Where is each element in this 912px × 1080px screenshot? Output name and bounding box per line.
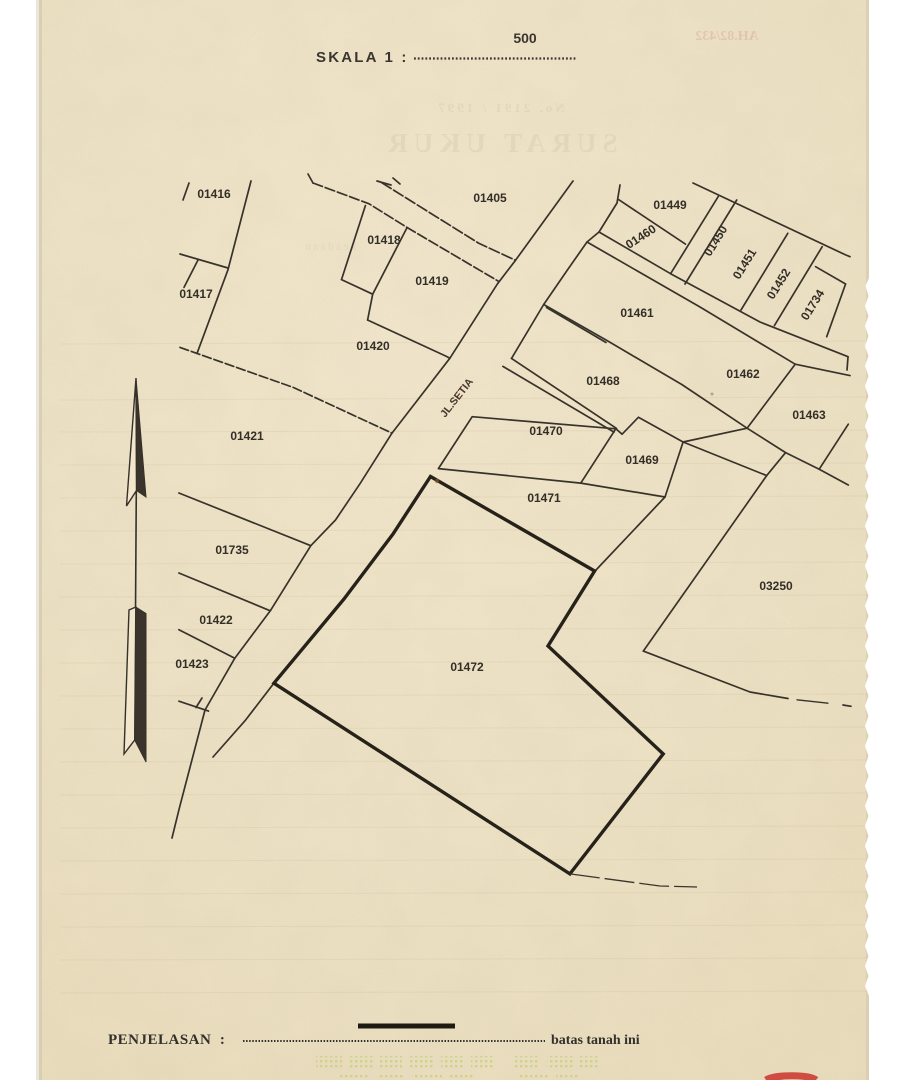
svg-text:03250: 03250 [759, 579, 793, 593]
svg-text:01422: 01422 [199, 613, 233, 627]
svg-text:01470: 01470 [529, 424, 563, 438]
svg-text:01423: 01423 [175, 657, 209, 671]
svg-text:01462: 01462 [726, 367, 760, 381]
svg-text:01419: 01419 [415, 274, 449, 288]
svg-text:01405: 01405 [473, 191, 507, 205]
svg-text:01461: 01461 [620, 306, 654, 320]
svg-text:AH.82/432: AH.82/432 [695, 29, 758, 44]
svg-text:01471: 01471 [527, 491, 561, 505]
svg-text:keadaan: keadaan [303, 239, 356, 253]
svg-text:01472: 01472 [450, 660, 484, 674]
svg-text:PENJELASAN :: PENJELASAN : [108, 1032, 225, 1048]
svg-text:01417: 01417 [179, 287, 213, 301]
svg-text:SKALA 1 :: SKALA 1 : [316, 49, 409, 66]
svg-text:batas tanah ini: batas tanah ini [551, 1033, 640, 1048]
svg-text:SURAT UKUR: SURAT UKUR [382, 128, 617, 158]
svg-text:01420: 01420 [356, 339, 390, 353]
svg-text:01735: 01735 [215, 543, 249, 557]
svg-text:500: 500 [513, 30, 537, 46]
svg-text:01468: 01468 [586, 374, 620, 388]
svg-text:01416: 01416 [197, 187, 231, 201]
svg-text:01418: 01418 [367, 233, 401, 247]
svg-text:01449: 01449 [653, 198, 687, 212]
svg-text:01463: 01463 [792, 408, 826, 422]
svg-text:01421: 01421 [230, 429, 264, 443]
svg-text:01469: 01469 [625, 453, 659, 467]
svg-text:No. 2191 / 1997: No. 2191 / 1997 [435, 100, 565, 115]
